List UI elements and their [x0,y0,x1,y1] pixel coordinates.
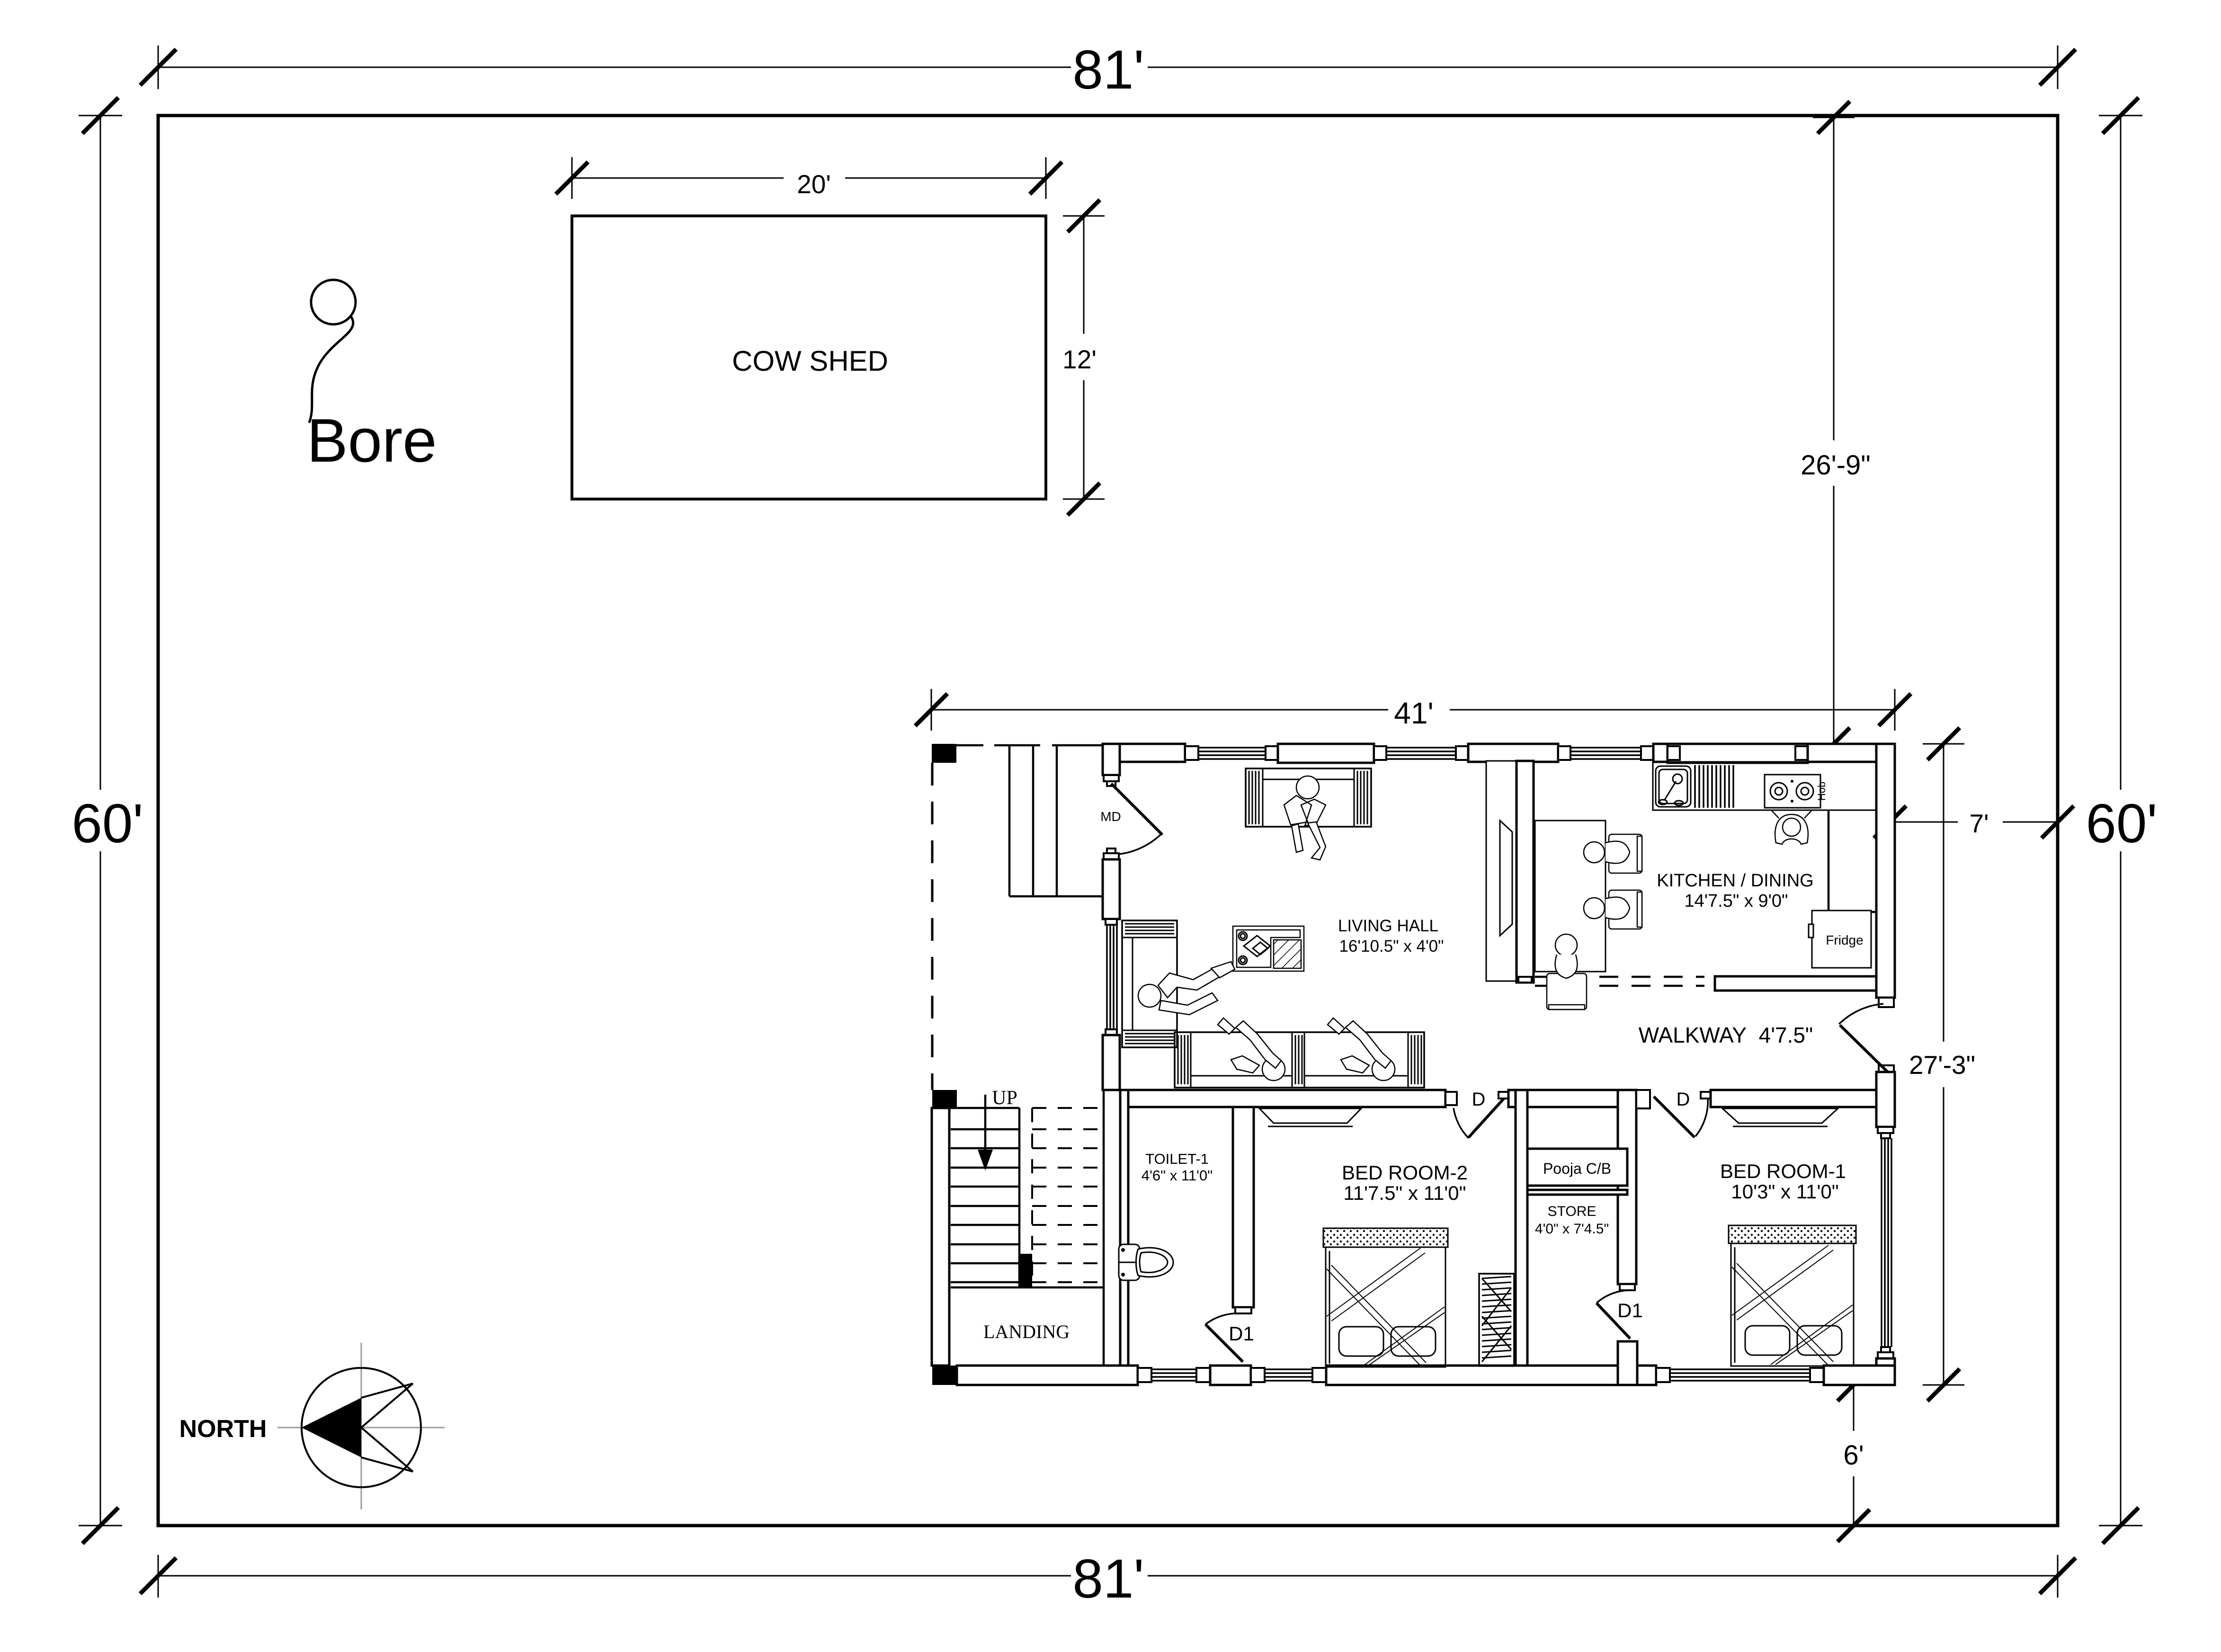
svg-text:Bore: Bore [307,406,437,475]
svg-text:26'-9": 26'-9" [1801,450,1871,481]
svg-text:12': 12' [1062,345,1097,374]
svg-text:41': 41' [1394,696,1433,730]
svg-text:BED ROOM-1: BED ROOM-1 [1720,1160,1846,1182]
svg-text:60': 60' [71,793,143,854]
svg-text:4'6" x 11'0": 4'6" x 11'0" [1142,1167,1213,1184]
svg-text:LANDING: LANDING [983,1321,1070,1342]
svg-text:27'-3": 27'-3" [1909,1050,1975,1080]
svg-text:D: D [1472,1089,1486,1110]
svg-text:Pooja C/B: Pooja C/B [1543,1160,1611,1177]
svg-text:60': 60' [2086,793,2157,854]
svg-text:NORTH: NORTH [179,1415,267,1443]
svg-text:4'0" x 7'4.5": 4'0" x 7'4.5" [1535,1221,1609,1237]
svg-text:D1: D1 [1617,1299,1643,1322]
svg-text:D: D [1677,1089,1690,1110]
svg-text:STORE: STORE [1548,1204,1597,1219]
svg-text:20': 20' [797,170,831,199]
svg-text:Fridge: Fridge [1826,933,1863,947]
svg-text:14'7.5" x 9'0": 14'7.5" x 9'0" [1685,891,1788,911]
svg-text:6': 6' [1843,1440,1864,1471]
svg-text:LIVING HALL: LIVING HALL [1338,917,1438,935]
svg-text:UP: UP [992,1087,1017,1109]
svg-text:Hob: Hob [1816,782,1828,801]
svg-text:7': 7' [1969,809,1989,838]
svg-text:TOILET-1: TOILET-1 [1145,1151,1209,1167]
svg-text:16'10.5" x 4'0": 16'10.5" x 4'0" [1339,937,1444,955]
svg-text:81': 81' [1072,39,1144,100]
svg-text:BED ROOM-2: BED ROOM-2 [1342,1161,1468,1184]
svg-text:COW SHED: COW SHED [732,345,888,377]
svg-text:KITCHEN / DINING: KITCHEN / DINING [1657,871,1813,891]
svg-text:WALKWAY 4'7.5": WALKWAY 4'7.5" [1639,1023,1813,1047]
svg-text:11'7.5" x 11'0": 11'7.5" x 11'0" [1343,1182,1466,1204]
svg-text:81': 81' [1072,1548,1144,1609]
svg-text:MD: MD [1100,809,1121,824]
svg-text:D1: D1 [1229,1322,1254,1345]
svg-text:10'3" x 11'0": 10'3" x 11'0" [1731,1180,1838,1203]
